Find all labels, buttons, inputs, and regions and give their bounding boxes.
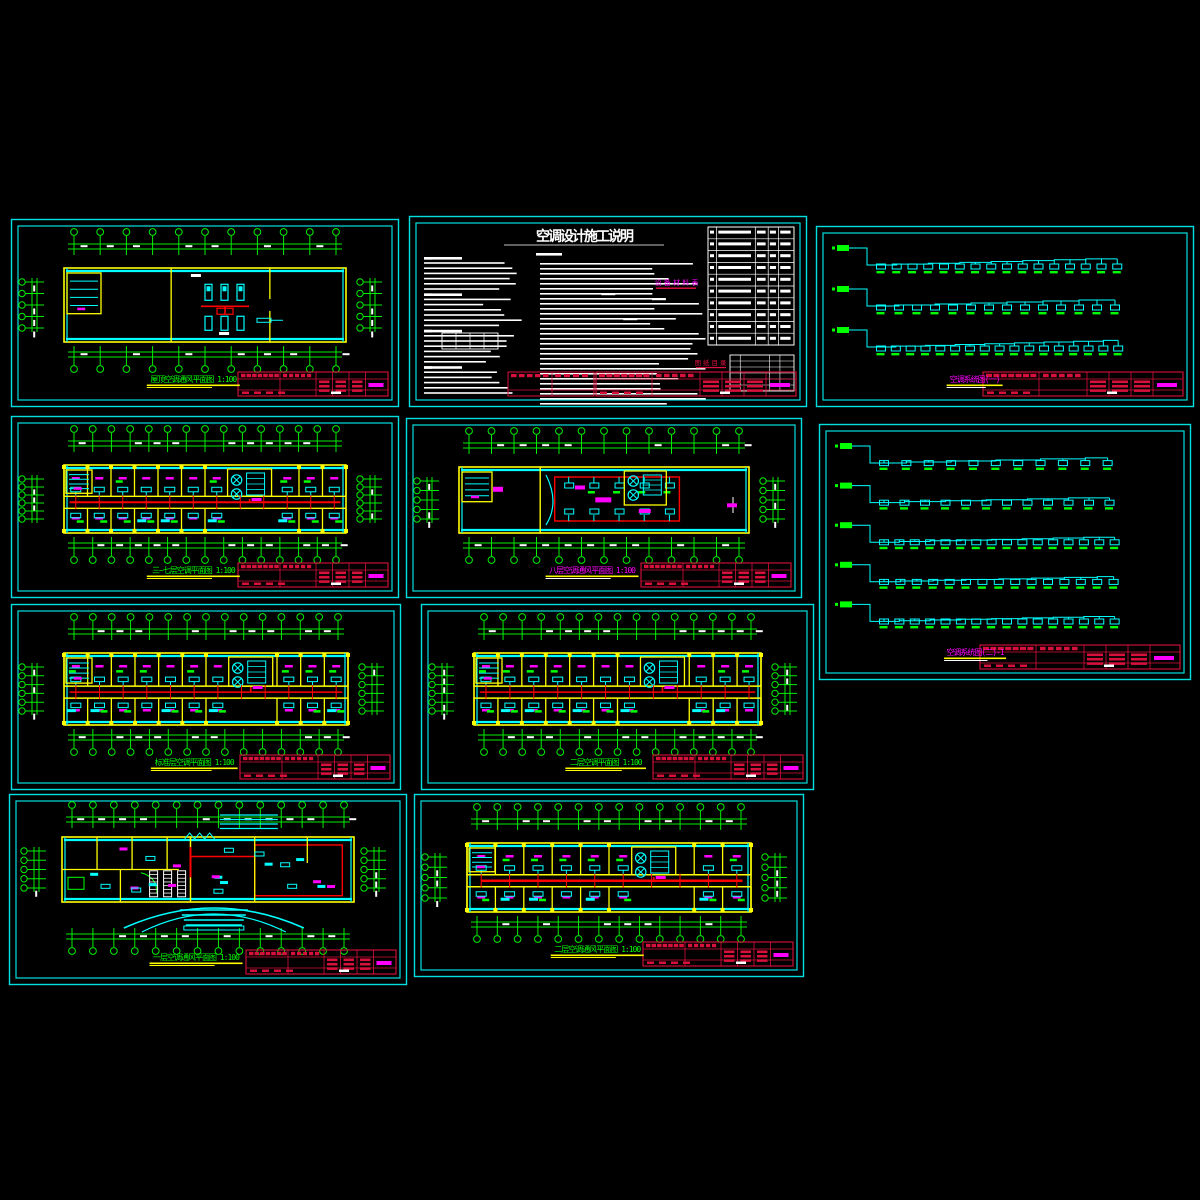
floor-plan [62,653,350,725]
dimension-grid-horizontal [463,537,745,563]
title-block [643,942,793,966]
dimension-grid-vertical [357,475,382,523]
dimension-grid-horizontal [471,916,747,942]
floor-plan [472,653,763,725]
dimension-grid-vertical [760,477,785,528]
entrance-canopy [124,815,304,932]
dimension-grid-horizontal [68,537,348,563]
sheet-roof-plan[interactable]: 屋顶空调通风平面图 1:100 [10,218,400,408]
dimension-grid-horizontal [68,229,342,255]
drawing-title: 二层空调平面图 1:100 [565,757,646,771]
building-outline [64,268,346,342]
drawing-title: 标准层空调平面图 1:100 [151,757,238,771]
dimension-grid-horizontal [68,614,344,640]
sheet-floor-2-plan[interactable]: 二层空调平面图 1:100 [420,603,815,791]
elevator-core [640,657,684,689]
drawing-list-heading: 图 纸 目 录 [695,358,727,367]
title-block [238,372,388,396]
refrigerant-pipe [70,685,343,699]
dimension-grid-horizontal [68,346,350,372]
roof-plan [67,268,283,342]
drawing-title-text: 空调系统图(一) [950,374,1000,384]
sheet-notes[interactable]: 空调设计施工说明设 备 材 料 表图 纸 目 录 [408,215,808,408]
drawing-title-text: 屋顶空调通风平面图 1:100 [150,374,237,384]
drawing-title: 屋顶空调通风平面图 1:100 [147,374,240,388]
sheet-floor-8-plan[interactable]: 八层空调通风平面图 1:100 [405,417,803,599]
dimension-grid-vertical [429,663,454,720]
drawing-title-text: 标准层空调平面图 1:100 [155,757,235,767]
dimension-grid-vertical [357,278,382,337]
dimension-grid-vertical [19,278,44,337]
equipment-table: 设 备 材 料 表 [655,227,794,345]
system-branch-row [835,443,1112,470]
elevator-core [229,657,273,689]
dimension-grid-horizontal [478,614,763,640]
drawing-title: 二层空调通风平面图 1:100 [551,944,644,958]
dimension-grid-horizontal [68,426,342,452]
drawing-title: 三~七层空调平面图 1:100 [147,565,240,579]
notes-heading: 空调设计施工说明 [536,228,634,245]
refrigerant-pipe [481,874,742,888]
dimension-grid-vertical [19,475,44,523]
system-branch-row [835,601,1119,628]
elevator-core [632,847,676,879]
floor-plan [62,465,348,533]
drawing-title-text: 八层空调通风平面图 1:100 [549,565,636,575]
vrv-system-diagram [835,443,1119,628]
stairwell [469,848,495,872]
elevator-core [228,469,272,501]
system-branch-row [832,245,1122,273]
system-branch-row [832,327,1123,355]
drawing-title-text: 二层空调平面图 1:100 [570,757,643,767]
refrigerant-pipe [70,495,341,509]
system-branch-row [835,483,1114,510]
dimension-grid-vertical [762,853,787,902]
dimension-grid-horizontal [68,729,350,755]
dimension-grid-vertical [414,477,439,528]
vrv-system-diagram [832,245,1123,355]
title-block [983,372,1183,396]
cad-model-space[interactable]: 屋顶空调通风平面图 1:100空调设计施工说明设 备 材 料 表图 纸 目 录空… [0,0,1200,1200]
sheet-floor-1-plan[interactable]: 一层空调通风平面图 1:100 [8,793,408,986]
drawing-title-text: 空调系统图(二)-1 [946,647,1004,657]
sheet-floor-std-plan[interactable]: 标准层空调平面图 1:100 [10,603,402,791]
title-block [641,563,791,587]
dimension-grid-horizontal [478,729,763,755]
dimension-grid-vertical [772,663,797,715]
hall-plan [462,467,737,533]
dimension-grid-vertical [359,663,384,715]
ground-floor-plan [62,833,342,902]
drawing-title: 空调系统图(一) [947,374,1003,388]
system-branch-row [835,522,1119,549]
title-block [653,755,803,779]
sheet-system-1[interactable]: 空调系统图(一) [815,225,1195,408]
equipment-table-heading: 设 备 材 料 表 [655,278,699,287]
dimension-grid-vertical [422,853,447,907]
dimension-grid-vertical [21,847,46,897]
sheet-floor-3-7-plan[interactable]: 三~七层空调平面图 1:100 [10,415,400,599]
dimension-grid-horizontal [471,804,747,830]
title-block [980,645,1180,669]
dimension-grid-horizontal [66,802,356,828]
drawing-title: 八层空调通风平面图 1:100 [546,565,639,579]
drawing-title: 一层空调通风平面图 1:100 [150,952,243,966]
title-block [240,755,390,779]
dimension-grid-horizontal [463,428,752,454]
system-branch-row [835,562,1118,589]
drawing-title-text: 三~七层空调平面图 1:100 [152,565,236,575]
drawing-title: 空调系统图(二)-1 [944,647,1006,661]
dimension-grid-vertical [361,847,386,897]
dimension-grid-vertical [19,663,44,720]
sheet-frame [817,227,1194,407]
sheet-system-2[interactable]: 空调系统图(二)-1 [818,423,1192,681]
floor-plan [465,843,753,912]
refrigerant-pipe [480,685,756,699]
spec-notes-sheet: 空调设计施工说明 [424,228,706,405]
system-branch-row [832,286,1120,314]
drawing-title-text: 二层空调通风平面图 1:100 [554,944,641,954]
sheet-floor-2-vent-plan[interactable]: 二层空调通风平面图 1:100 [413,793,805,978]
title-block [238,563,388,587]
drawing-title-text: 一层空调通风平面图 1:100 [153,952,240,962]
